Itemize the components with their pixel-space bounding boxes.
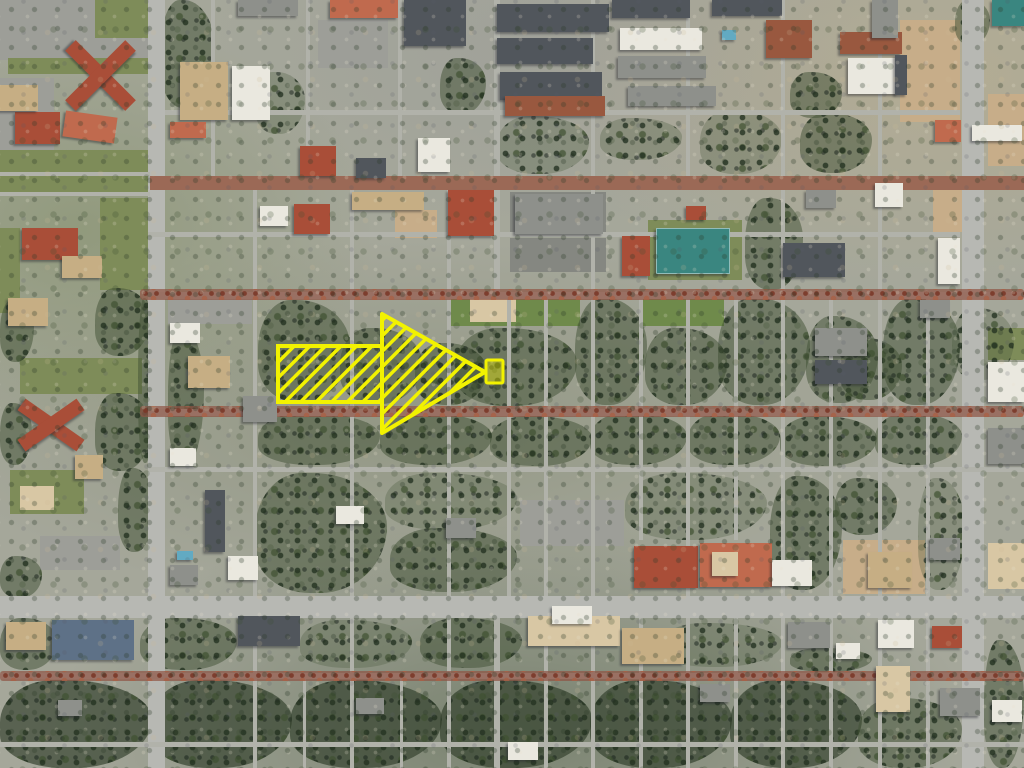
map-road	[0, 596, 1024, 618]
map-building	[58, 700, 82, 716]
map-tree-patch	[700, 110, 782, 174]
map-tree-patch	[497, 116, 589, 174]
map-tree-patch	[718, 298, 810, 405]
map-building	[505, 96, 605, 116]
map-area-parking	[318, 20, 388, 68]
map-tree-patch	[420, 618, 522, 668]
map-tree-patch	[875, 413, 962, 465]
map-road	[734, 295, 738, 540]
map-building	[260, 206, 288, 226]
map-tree-patch	[835, 478, 897, 535]
map-building	[170, 323, 200, 343]
map-area-dirt	[900, 20, 960, 122]
map-building	[992, 0, 1024, 26]
map-building	[988, 362, 1024, 402]
map-road	[0, 192, 150, 196]
map-road	[926, 295, 930, 768]
target-location-marker[interactable]	[486, 360, 503, 383]
map-building	[622, 628, 684, 664]
map-building	[988, 428, 1024, 464]
map-building	[177, 551, 193, 560]
map-building	[783, 243, 845, 277]
tree-lined-street	[0, 671, 1024, 681]
map-building	[336, 506, 364, 524]
map-building	[628, 86, 716, 106]
map-road	[148, 467, 1024, 472]
map-tree-patch	[490, 416, 592, 466]
map-building	[232, 66, 270, 120]
map-building	[940, 688, 980, 716]
map-building	[188, 356, 230, 388]
map-building	[515, 194, 603, 234]
map-building	[722, 30, 736, 40]
map-tree-patch	[625, 473, 767, 540]
map-tree-patch	[600, 118, 682, 160]
map-tree-patch	[575, 298, 647, 405]
map-building	[418, 138, 450, 172]
map-building	[205, 490, 225, 552]
map-building	[895, 55, 907, 95]
map-area-lawn	[20, 358, 142, 394]
map-building	[700, 684, 730, 702]
map-building	[772, 560, 812, 586]
map-tree-patch	[255, 473, 387, 593]
map-tree-patch	[800, 113, 872, 173]
map-tree-patch	[290, 680, 442, 768]
map-building	[876, 666, 910, 712]
map-building	[356, 158, 386, 178]
map-building	[228, 556, 258, 580]
map-building	[972, 125, 1022, 141]
map-area-dirt_light	[20, 486, 54, 510]
map-building	[620, 28, 702, 50]
map-road	[686, 295, 690, 768]
map-building	[815, 328, 867, 356]
map-building	[686, 206, 706, 220]
map-building	[404, 0, 466, 46]
map-area-parking	[168, 296, 252, 324]
map-tree-patch	[168, 328, 204, 466]
satellite-map[interactable]	[0, 0, 1024, 768]
map-area-parking	[520, 500, 624, 546]
map-building	[712, 552, 738, 576]
map-building	[848, 58, 898, 94]
map-building	[170, 448, 196, 466]
map-road	[962, 0, 984, 768]
map-building	[930, 538, 960, 560]
map-building	[170, 122, 206, 138]
map-road	[507, 295, 511, 600]
map-building	[170, 565, 198, 585]
map-tree-patch	[455, 328, 577, 406]
map-building	[932, 626, 962, 648]
map-road	[400, 676, 403, 768]
map-tree-patch	[0, 680, 152, 768]
tree-lined-street	[140, 289, 1024, 300]
map-building	[62, 256, 102, 278]
map-tree-patch	[150, 680, 292, 768]
map-road	[878, 0, 882, 768]
map-building	[935, 120, 961, 142]
map-building	[612, 0, 690, 18]
map-building	[622, 236, 650, 276]
map-building	[352, 192, 424, 210]
map-building	[448, 190, 494, 236]
map-area-lawn	[100, 198, 148, 290]
map-building	[815, 360, 867, 384]
map-building	[806, 190, 836, 208]
map-building	[836, 643, 860, 659]
map-building	[75, 455, 103, 479]
map-tree-patch	[440, 58, 486, 114]
map-building	[330, 0, 398, 18]
map-building	[180, 62, 228, 120]
map-building	[62, 111, 117, 144]
map-building	[6, 622, 46, 650]
map-area-parking	[40, 536, 120, 570]
map-building	[766, 20, 812, 58]
map-building	[446, 518, 476, 538]
map-building	[243, 396, 277, 422]
map-road	[398, 0, 402, 180]
map-building	[992, 700, 1022, 722]
map-building	[868, 552, 912, 588]
map-building	[618, 56, 706, 78]
map-road	[639, 295, 643, 540]
map-building	[0, 85, 38, 111]
map-road	[781, 0, 785, 768]
map-building	[300, 146, 336, 176]
map-tree-patch	[380, 413, 492, 465]
map-road	[148, 0, 165, 768]
map-building	[52, 620, 134, 660]
map-building	[238, 0, 298, 16]
tennis-courts	[656, 228, 730, 274]
map-building	[497, 38, 593, 64]
map-building	[15, 112, 60, 144]
map-road	[303, 676, 306, 768]
map-building	[497, 4, 609, 32]
map-area-dirt_light	[988, 543, 1024, 589]
map-building	[508, 742, 538, 760]
map-road	[0, 172, 150, 176]
map-building	[872, 0, 898, 38]
map-building	[712, 0, 782, 16]
map-building	[788, 622, 830, 648]
map-building	[875, 183, 903, 207]
map-building	[356, 698, 384, 714]
map-road	[544, 295, 548, 768]
map-tree-patch	[0, 556, 42, 598]
map-building	[920, 300, 950, 318]
map-tree-patch	[258, 300, 350, 402]
map-tree-patch	[300, 620, 412, 668]
map-building	[878, 620, 914, 648]
map-tree-patch	[730, 680, 862, 768]
map-building	[294, 204, 330, 234]
map-building	[238, 616, 300, 646]
map-building	[8, 298, 48, 326]
map-building	[634, 546, 698, 588]
screenshot	[0, 0, 1024, 768]
map-building	[938, 238, 960, 284]
map-building	[552, 606, 592, 624]
map-area-lawn	[95, 0, 148, 38]
